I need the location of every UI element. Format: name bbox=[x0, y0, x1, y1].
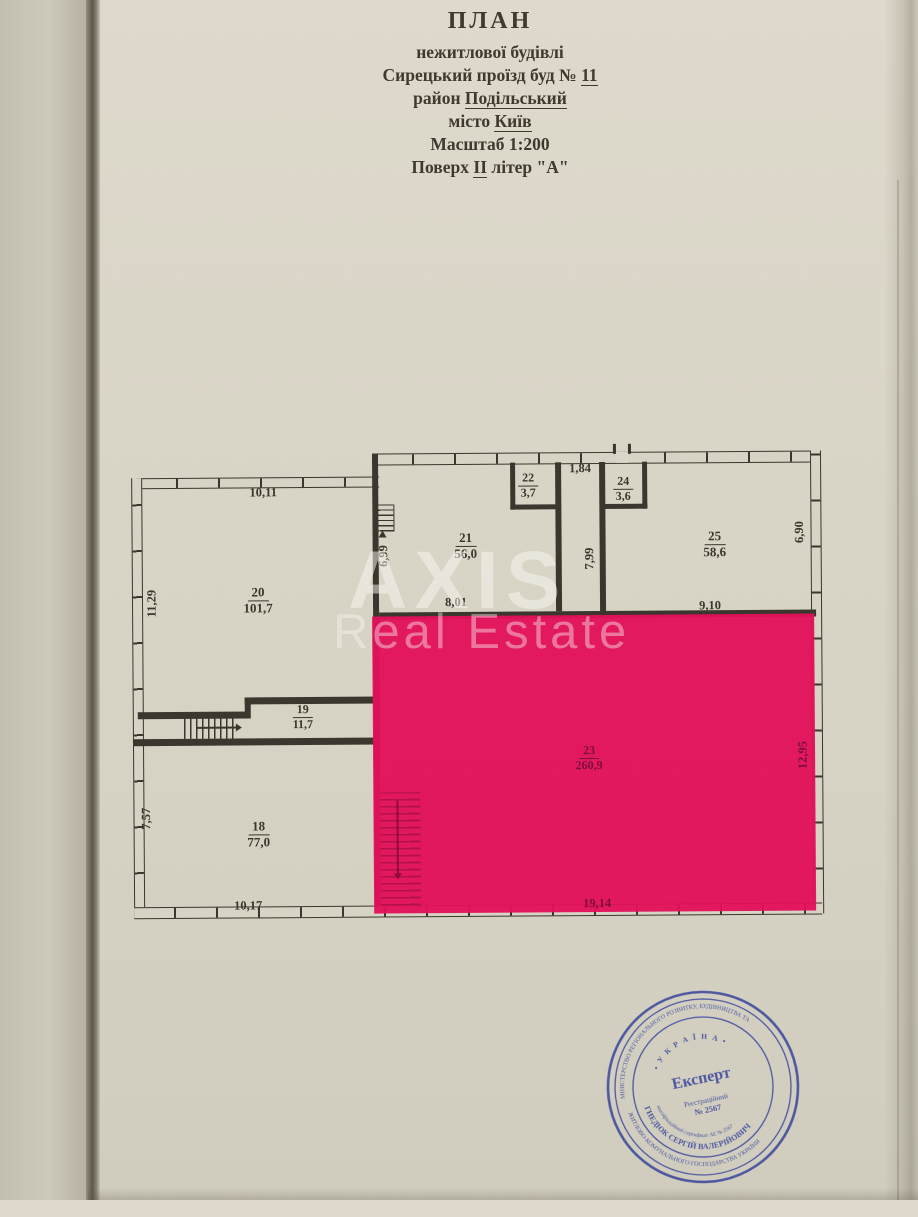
dim-corridor-top: 1,84 bbox=[552, 461, 608, 476]
room-label-24: 243,6 bbox=[600, 475, 646, 504]
dim-bottom-room23: 19,14 bbox=[569, 896, 625, 911]
stamp-title: Експерт bbox=[670, 1064, 732, 1093]
dim-right-room23: 12,95 bbox=[795, 727, 810, 783]
wall-left-outer bbox=[131, 478, 145, 918]
room-label-22: 223,7 bbox=[505, 471, 551, 500]
room-label-20: 20101,7 bbox=[228, 585, 288, 616]
room-label-19: 1911,7 bbox=[273, 703, 333, 732]
room-label-23: 23260,9 bbox=[559, 744, 619, 773]
staircase-room23 bbox=[380, 792, 421, 905]
room-label-25: 2558,6 bbox=[685, 529, 745, 560]
vent-notch-right bbox=[628, 444, 631, 454]
page-bottom-shade bbox=[88, 1188, 918, 1200]
staircase-room19-arrow bbox=[197, 727, 237, 729]
wall-room19-bottom bbox=[133, 738, 380, 747]
wall-room24-bottom bbox=[600, 504, 647, 509]
dim-left-room18: 7,57 bbox=[139, 791, 154, 847]
room-label-18: 1877,0 bbox=[229, 819, 289, 850]
dim-bottom-room18: 10,17 bbox=[220, 898, 276, 913]
stamp-ring-circle bbox=[599, 983, 808, 1192]
dim-top-room20: 10,11 bbox=[235, 485, 291, 500]
dim-right-room25: 6,90 bbox=[792, 504, 807, 560]
vent-notch-gap bbox=[616, 452, 628, 463]
axis-watermark-subtitle: Real Estate bbox=[333, 604, 693, 660]
page-crease bbox=[897, 180, 899, 1200]
vent-notch-left bbox=[613, 444, 616, 454]
dim-left-room20: 11,29 bbox=[144, 576, 159, 632]
wall-room22-bottom bbox=[510, 504, 560, 509]
expert-stamp: МІНІСТЕРСТВО РЕГІОНАЛЬНОГО РОЗВИТКУ, БУД… bbox=[573, 957, 834, 1217]
page-edge-shadow bbox=[884, 0, 918, 1200]
